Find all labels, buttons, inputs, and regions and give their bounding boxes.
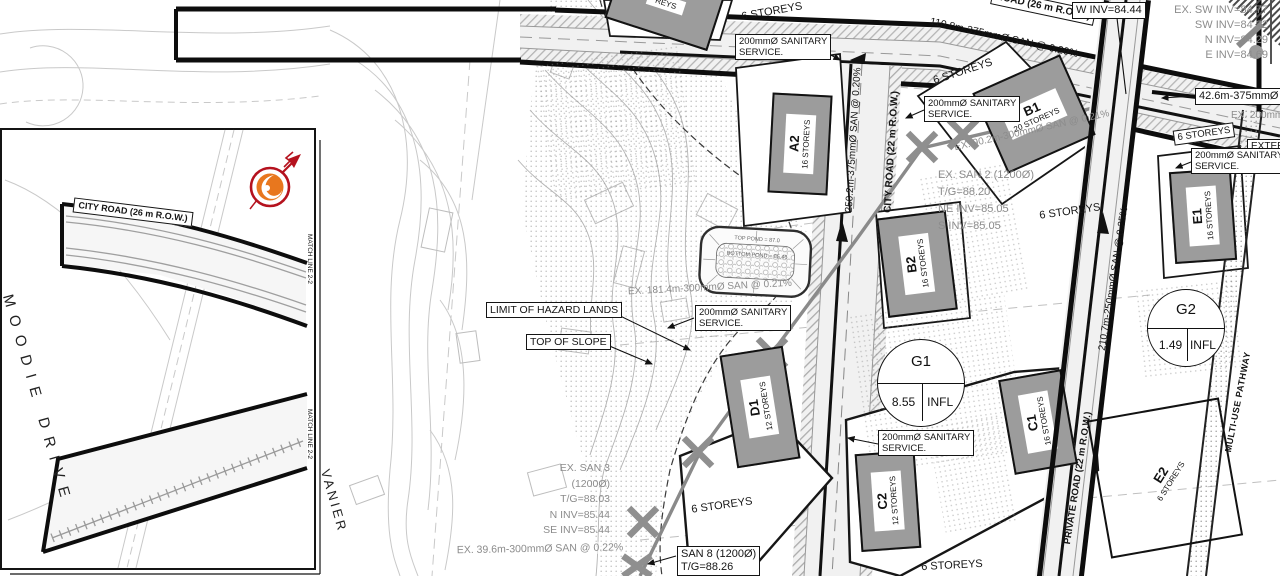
service-box-pond: 200mmØ SANITARY SERVICE.: [695, 305, 791, 331]
catchment-area-value: 1.49: [1154, 328, 1188, 361]
service-box-c2: 200mmØ SANITARY SERVICE.: [878, 430, 974, 456]
building-storeys: 12 STOREYS: [759, 381, 775, 431]
ex-san3-block: EX. SAN 3 (1200Ø) T/G=88.03 N INV=85.44 …: [528, 461, 610, 539]
catchment-values: 8.55 INFL: [885, 383, 957, 421]
site-servicing-plan: A2 16 STOREYS B1 20 STOREYS B2 16 STOREY…: [0, 0, 1280, 576]
catchment-id: G1: [878, 340, 964, 383]
building-a2-label: A2 16 STOREYS: [784, 114, 817, 175]
catchment-g2: G2 1.49 INFL: [1147, 289, 1225, 367]
inset-map: [1, 129, 320, 574]
building-e2: E2 6 STOREYS: [1087, 397, 1243, 558]
service-box-e1: 200mmØ SANITARY SERVICE.: [1191, 148, 1280, 174]
catchment-tag: INFL: [1188, 328, 1218, 361]
service-box-a2: 200mmØ SANITARY SERVICE.: [735, 34, 831, 60]
ex-san2-block: EX. SAN 2 (1200Ø) T/G=88.20 NE INV=85.05…: [938, 167, 1034, 235]
top-of-slope-box: TOP OF SLOPE: [526, 334, 611, 350]
building-d1-label: D1 12 STOREYS: [741, 375, 780, 438]
match-line-label-bottom: MATCH LINE 2-2: [305, 409, 313, 459]
catchment-tag: INFL: [923, 383, 957, 421]
building-e1: E1 16 STOREYS: [1169, 168, 1237, 264]
hazard-limit-box: LIMIT OF HAZARD LANDS: [486, 302, 622, 318]
san8-box: SAN 8 (1200Ø) T/G=88.26: [677, 546, 760, 576]
main-seg42-box: 42.6m-375mmØ SAN: [1195, 88, 1280, 105]
building-b2-label: B2 16 STOREYS: [899, 233, 936, 295]
building-id: B2: [904, 256, 919, 274]
service-box-b1: 200mmØ SANITARY SERVICE.: [924, 96, 1020, 122]
building-partial-label: REYS: [646, 0, 687, 16]
catchment-values: 1.49 INFL: [1154, 328, 1218, 361]
catchment-g1: G1 8.55 INFL: [877, 339, 965, 427]
building-e1-label: E1 16 STOREYS: [1186, 185, 1220, 246]
building-e2-label: E2 6 STOREYS: [1138, 447, 1192, 509]
building-a2: A2 16 STOREYS: [767, 92, 832, 195]
match-line-label-top: MATCH LINE 2-2: [305, 234, 313, 284]
building-id: E1: [1191, 208, 1205, 225]
building-c2-label: C2 12 STOREYS: [871, 470, 905, 531]
catchment-area-value: 8.55: [885, 383, 923, 421]
building-storeys: 16 STOREYS: [1204, 191, 1216, 241]
building-storeys: 16 STOREYS: [1037, 396, 1054, 446]
building-id: C2: [876, 493, 890, 510]
w-inv-box: W INV=84.44: [1072, 2, 1146, 19]
building-id: A2: [788, 135, 802, 152]
ex-junction-invs: EX. SW INV=84.77 SW INV=84.32 N INV=84.2…: [1160, 3, 1268, 63]
ex-200-label: EX. 200mmØ: [1231, 110, 1280, 122]
catchment-id: G2: [1148, 290, 1224, 328]
building-storeys: 16 STOREYS: [917, 238, 932, 288]
building-storeys: 12 STOREYS: [889, 476, 901, 526]
building-storeys: 16 STOREYS: [802, 120, 813, 170]
building-storeys-fragment: REYS: [654, 0, 677, 11]
building-c2: C2 12 STOREYS: [855, 450, 922, 552]
